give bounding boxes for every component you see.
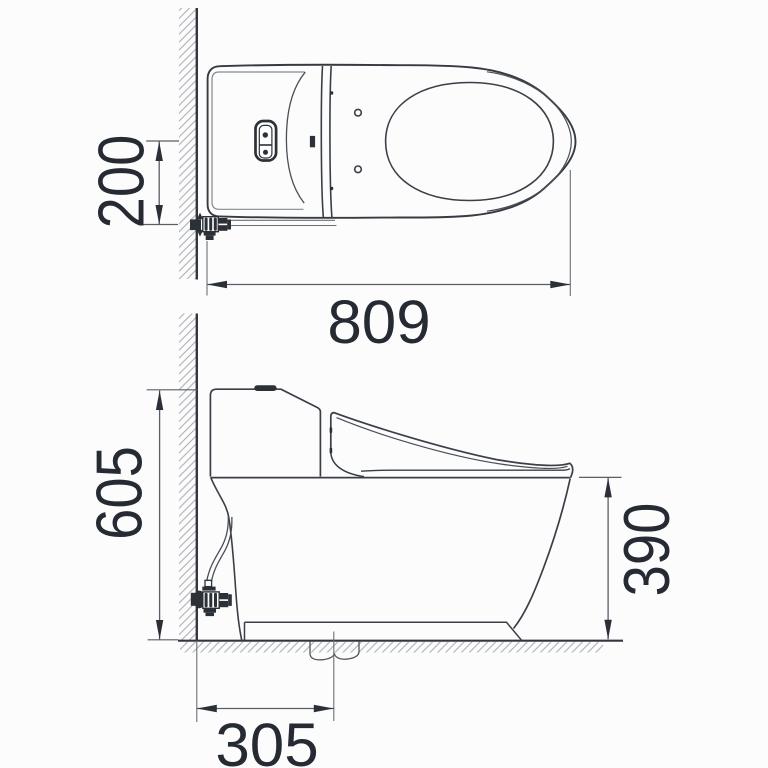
svg-text:605: 605 [83,446,156,540]
svg-text:200: 200 [85,135,158,229]
svg-text:305: 305 [215,711,318,768]
svg-text:390: 390 [610,503,683,597]
svg-text:809: 809 [327,288,430,356]
